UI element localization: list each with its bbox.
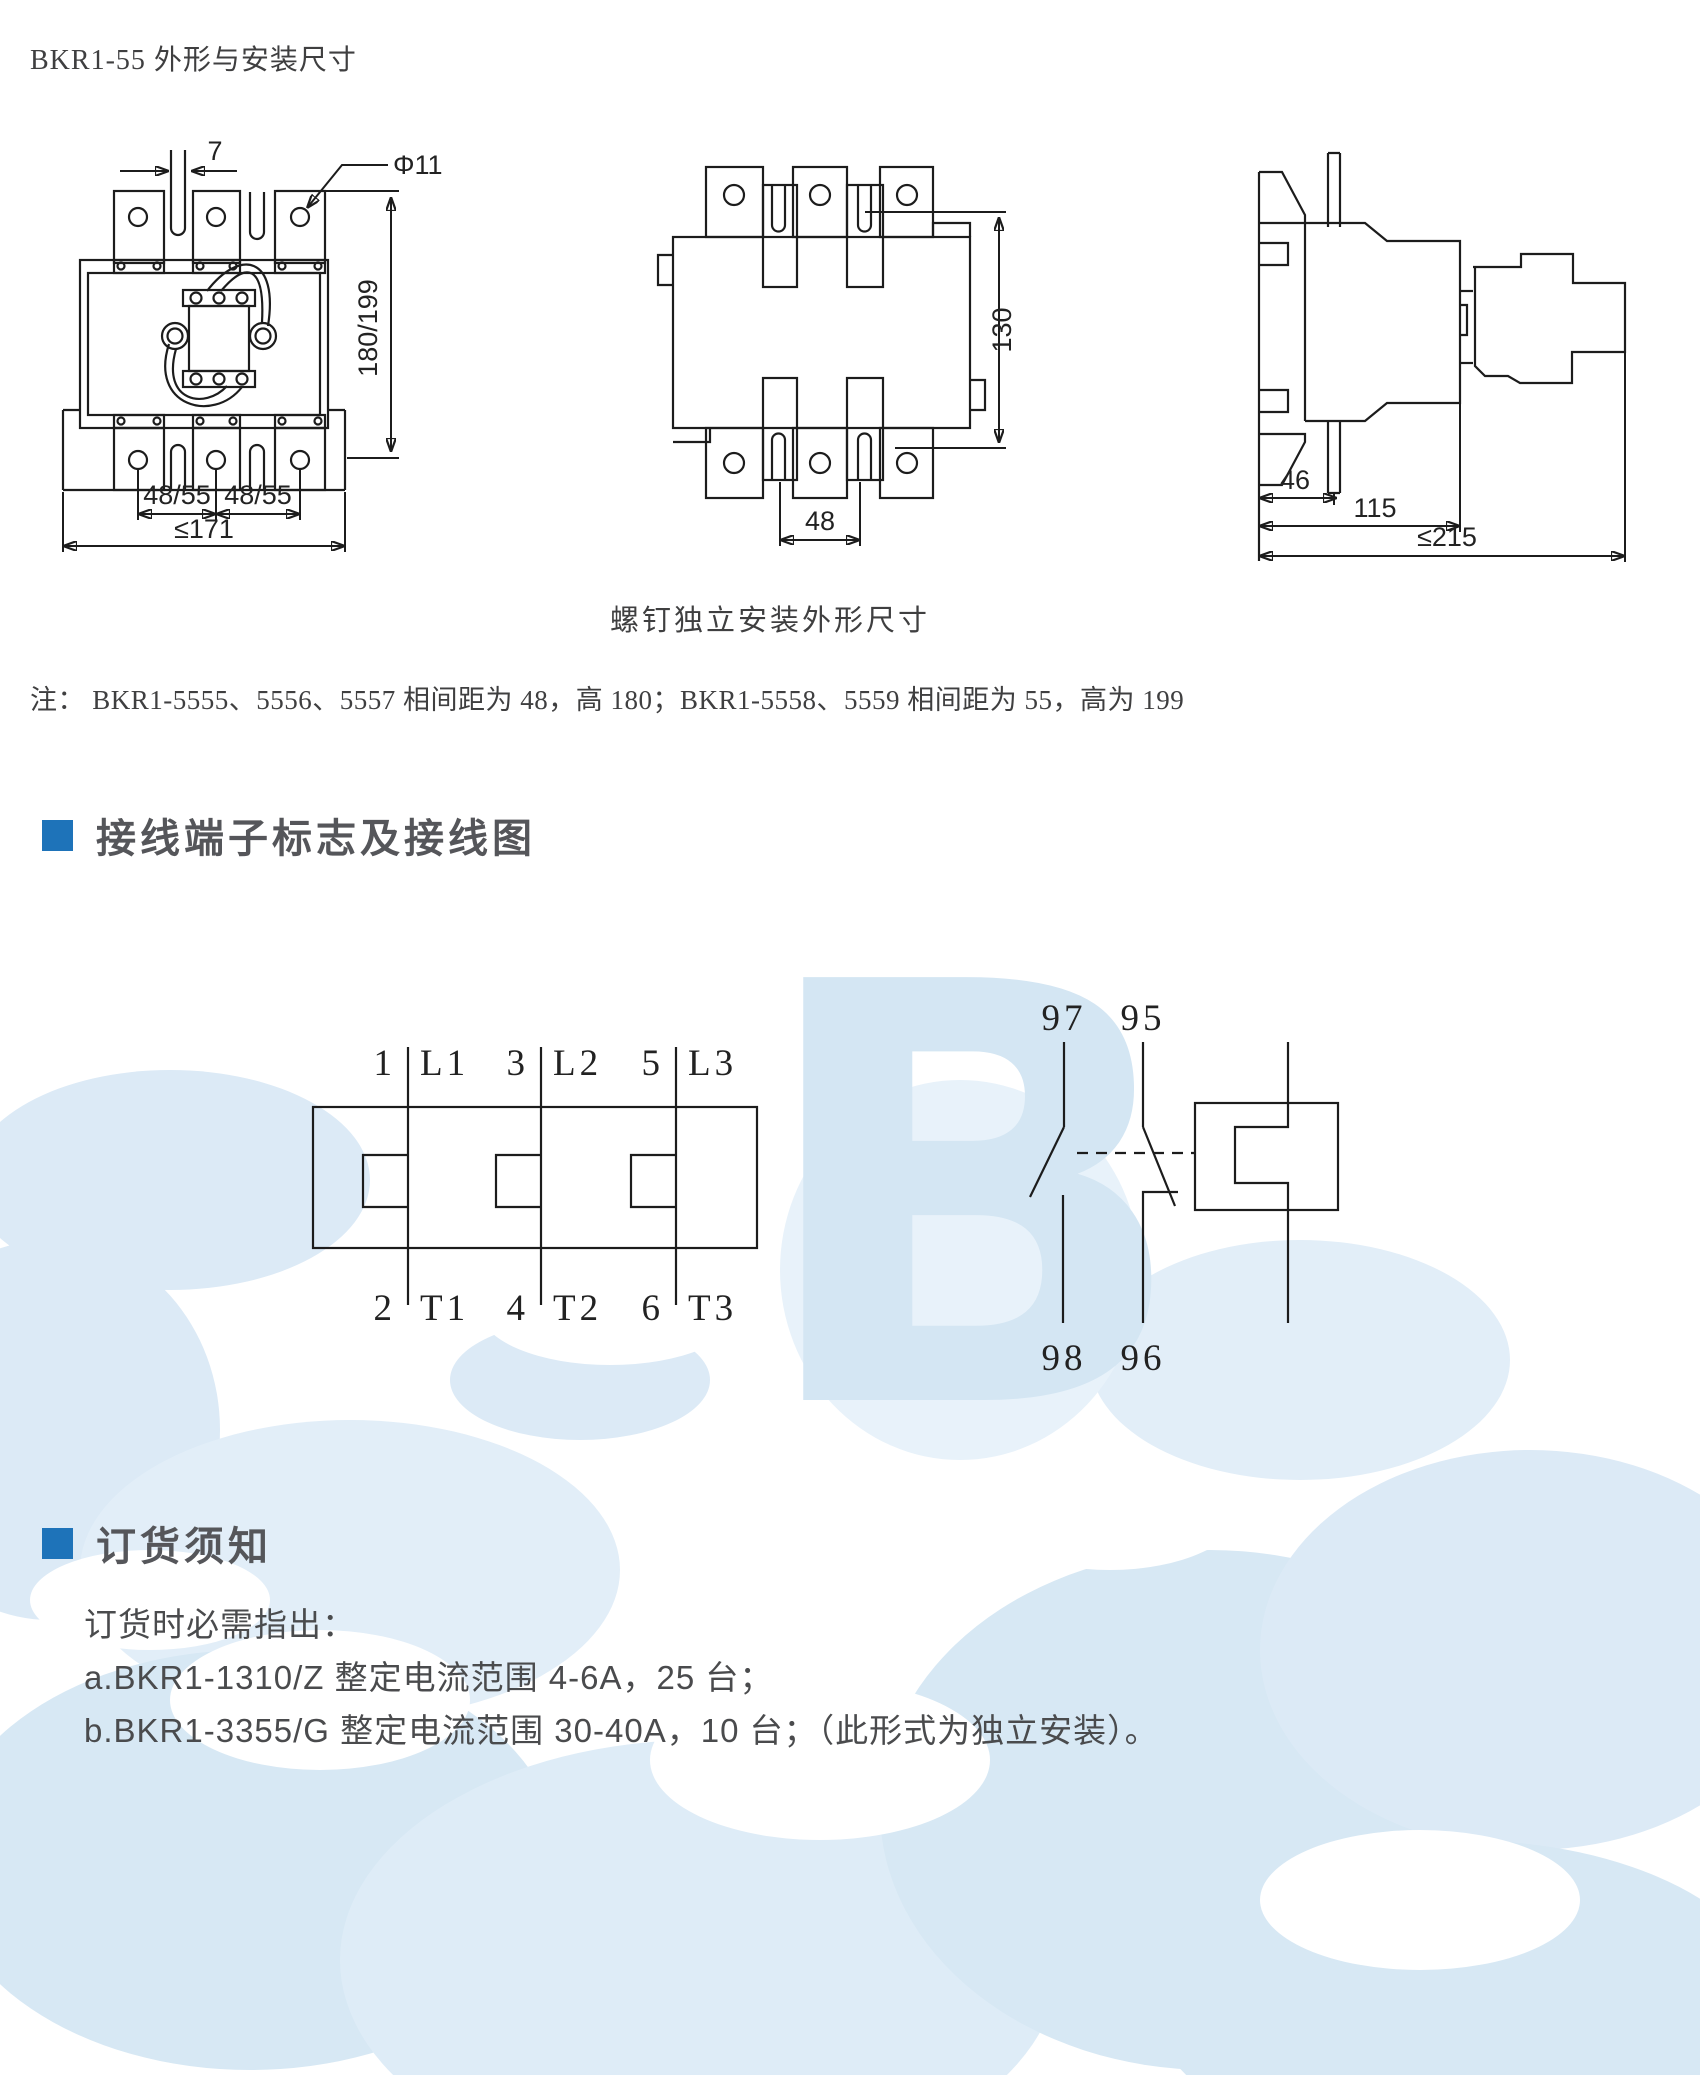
front-view-relay-core <box>162 265 276 407</box>
section-bullet-icon <box>42 820 73 851</box>
dim-total-width: ≤171 <box>174 514 234 544</box>
dim-slot-width: 7 <box>207 136 222 166</box>
terminal-L2: L2 <box>553 1043 602 1084</box>
wiring-aux-diagram: 97 95 98 96 <box>1020 990 1360 1400</box>
page-title: BKR1-55 外形与安装尺寸 <box>30 38 357 78</box>
wiring-main-box <box>313 1107 757 1248</box>
section-title-ordering: 订货须知 <box>96 1514 272 1572</box>
front-view-drawing: 7 Φ11 180/199 <box>55 100 460 565</box>
terminal-98: 98 <box>1042 1338 1087 1379</box>
terminal-96: 96 <box>1121 1338 1166 1379</box>
front-view-body <box>80 260 328 428</box>
wiring-aux-labels: 97 95 98 96 <box>1042 998 1166 1379</box>
terminal-5: 5 <box>642 1043 665 1084</box>
ordering-notes: 订货时必需指出： a.BKR1-1310/Z 整定电流范围 4-6A，25 台；… <box>84 1598 1159 1757</box>
dim-pitch-right: 48/55 <box>224 480 292 510</box>
terminal-1: 1 <box>374 1043 397 1084</box>
dim-height: 180/199 <box>353 279 383 377</box>
ordering-item-a: a.BKR1-1310/Z 整定电流范围 4-6A，25 台； <box>84 1651 1159 1704</box>
terminal-L1: L1 <box>420 1043 469 1084</box>
terminal-4: 4 <box>507 1288 530 1329</box>
rear-view-bottom-tabs <box>706 378 933 498</box>
front-view-top-tabs <box>114 191 325 263</box>
dim-rear-pitch: 48 <box>805 506 835 536</box>
terminal-95: 95 <box>1121 998 1166 1039</box>
terminal-T2: T2 <box>553 1288 602 1329</box>
terminal-2: 2 <box>374 1288 397 1329</box>
front-view-width-dims: 48/55 48/55 ≤171 <box>63 470 345 552</box>
rear-view-top-tabs <box>706 167 933 287</box>
dim-depth-body: 115 <box>1353 493 1396 523</box>
section-header-wiring: 接线端子标志及接线图 <box>42 806 536 864</box>
dim-hole-dia: Φ11 <box>393 150 443 180</box>
terminal-6: 6 <box>642 1288 665 1329</box>
section-title-wiring: 接线端子标志及接线图 <box>96 806 536 864</box>
drawings-caption: 螺钉独立安装外形尺寸 <box>550 597 990 639</box>
note-text: 注： BKR1-5555、5556、5557 相间距为 48，高 180；BKR… <box>30 678 1184 717</box>
rear-view-body <box>658 223 985 442</box>
front-view-height-dim: 180/199 <box>325 191 399 458</box>
dim-rear-height: 130 <box>987 307 1017 352</box>
terminal-L3: L3 <box>688 1043 737 1084</box>
terminal-97: 97 <box>1042 998 1087 1039</box>
datasheet-page: B BKR1-55 外形与安装尺寸 7 <box>0 0 1700 2075</box>
wiring-main-diagram: 1 L1 3 L2 5 L3 2 T1 4 T2 6 T3 <box>295 1020 775 1340</box>
section-bullet-icon <box>42 1528 73 1559</box>
front-view-slot-dim: 7 <box>120 136 237 235</box>
terminal-T3: T3 <box>688 1288 737 1329</box>
dim-total-depth: ≤215 <box>1417 522 1477 552</box>
wiring-aux-heater <box>1195 1042 1338 1323</box>
terminal-3: 3 <box>507 1043 530 1084</box>
ordering-intro: 订货时必需指出： <box>84 1598 1159 1651</box>
ordering-item-b: b.BKR1-3355/G 整定电流范围 30-40A，10 台；（此形式为独立… <box>84 1704 1159 1757</box>
side-view-head <box>1460 254 1625 383</box>
rear-view-drawing: 130 48 <box>650 105 1070 555</box>
dim-pitch-left: 48/55 <box>143 480 211 510</box>
front-view-hole-callout: Φ11 <box>307 150 443 208</box>
dim-depth-plate: 46 <box>1280 465 1310 495</box>
terminal-T1: T1 <box>420 1288 469 1329</box>
wiring-main-poles <box>363 1047 676 1305</box>
rear-view-height-dim: 130 <box>865 212 1017 448</box>
wiring-aux-nc-contact <box>1143 1042 1178 1323</box>
wiring-main-labels: 1 L1 3 L2 5 L3 2 T1 4 T2 6 T3 <box>374 1043 738 1329</box>
section-header-ordering: 订货须知 <box>42 1514 272 1572</box>
side-view-drawing: 46 115 ≤215 <box>1225 95 1660 570</box>
wiring-aux-no-contact <box>1030 1042 1064 1323</box>
